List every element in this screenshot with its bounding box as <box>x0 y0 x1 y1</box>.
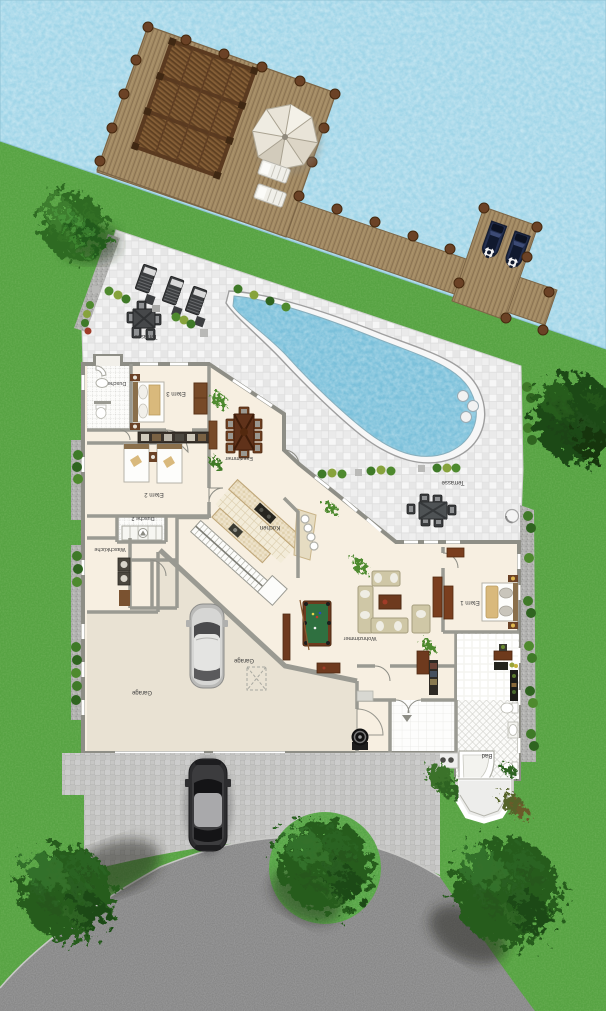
svg-text:Kochen: Kochen <box>260 524 280 530</box>
svg-text:Bad: Bad <box>482 752 493 758</box>
svg-text:Etern 1: Etern 1 <box>460 599 480 605</box>
svg-text:Etern 3: Etern 3 <box>166 390 186 396</box>
svg-text:Wohnzimmer: Wohnzimmer <box>343 635 376 641</box>
svg-text:Terrasse: Terrasse <box>441 479 465 485</box>
svg-text:Dusche: Dusche <box>108 380 127 386</box>
svg-text:Terrasse: Terrasse <box>134 333 158 339</box>
svg-text:Garage: Garage <box>233 657 254 663</box>
svg-text:Etern 2: Etern 2 <box>144 491 164 497</box>
svg-text:Dusche 2: Dusche 2 <box>131 515 154 521</box>
svg-text:Waschküche: Waschküche <box>94 546 125 552</box>
svg-text:Esszimmer: Esszimmer <box>225 455 253 461</box>
svg-text:Garage: Garage <box>131 689 152 695</box>
